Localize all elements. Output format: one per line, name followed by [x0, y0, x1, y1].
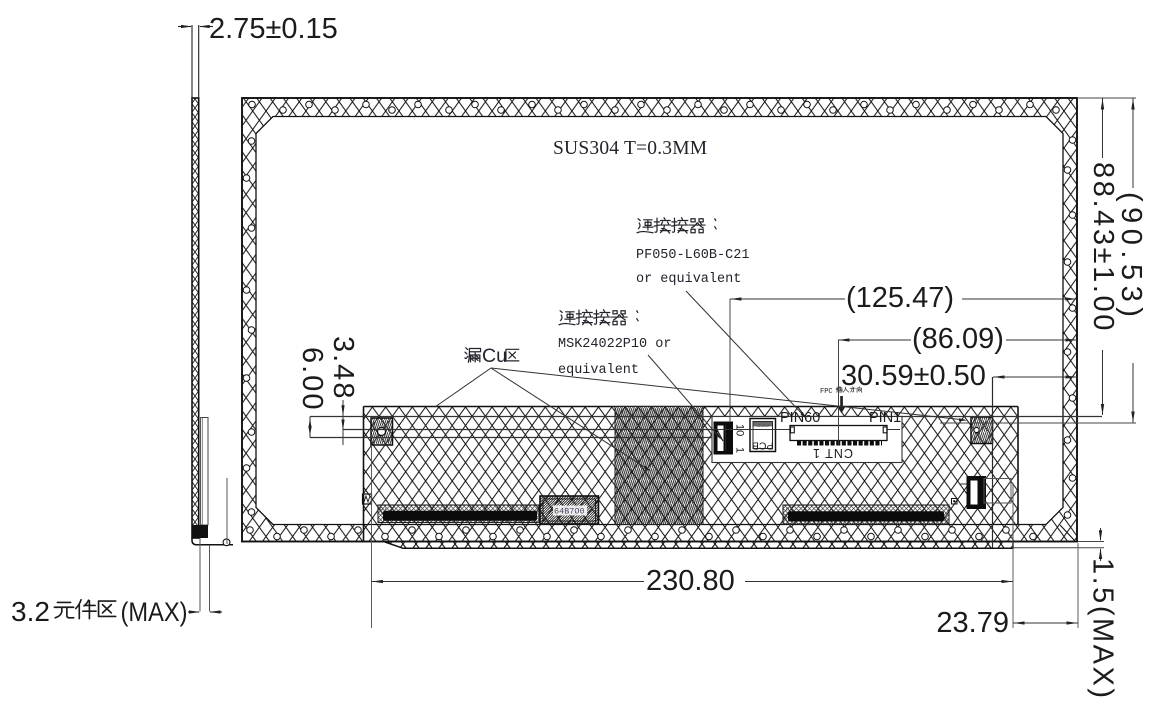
svg-text:23.79: 23.79 — [936, 607, 1009, 639]
svg-text:⌐⌐⌐: ⌐⌐⌐ — [757, 422, 769, 429]
svg-text:(125.47): (125.47) — [846, 282, 954, 314]
svg-text:1.5(MAX): 1.5(MAX) — [1087, 558, 1119, 700]
svg-text:64B7O0: 64B7O0 — [554, 507, 585, 517]
svg-text:SUS304 T=0.3MM: SUS304 T=0.3MM — [553, 138, 707, 159]
svg-text:(86.09): (86.09) — [912, 323, 1004, 355]
svg-text:3.2: 3.2 — [11, 596, 50, 627]
svg-text:230.80: 230.80 — [646, 565, 735, 597]
svg-text:30.59±0.50: 30.59±0.50 — [841, 360, 986, 392]
svg-text:10: 10 — [734, 424, 746, 436]
svg-text:3.48: 3.48 — [327, 336, 359, 400]
svg-text:o.i: o.i — [380, 507, 386, 513]
svg-text:(MAX): (MAX) — [121, 597, 188, 627]
svg-text:88.43±1.00: 88.43±1.00 — [1087, 162, 1119, 333]
svg-text:o.i: o.i — [786, 507, 792, 513]
svg-text:PF050-L60B-C21: PF050-L60B-C21 — [636, 248, 749, 263]
svg-text:6.00: 6.00 — [296, 347, 328, 411]
svg-text:Cu: Cu — [482, 345, 507, 367]
svg-text:CNT 1: CNT 1 — [812, 446, 853, 460]
svg-text:PCB: PCB — [752, 440, 774, 452]
svg-text:FPC: FPC — [820, 388, 833, 396]
svg-text:equivalent: equivalent — [558, 363, 639, 378]
svg-text:MSK24022P10 or: MSK24022P10 or — [558, 337, 671, 352]
svg-text:1: 1 — [734, 447, 746, 453]
svg-text:2.75±0.15: 2.75±0.15 — [209, 13, 338, 45]
svg-text:(90.53): (90.53) — [1115, 192, 1147, 322]
svg-text:or equivalent: or equivalent — [636, 272, 741, 287]
